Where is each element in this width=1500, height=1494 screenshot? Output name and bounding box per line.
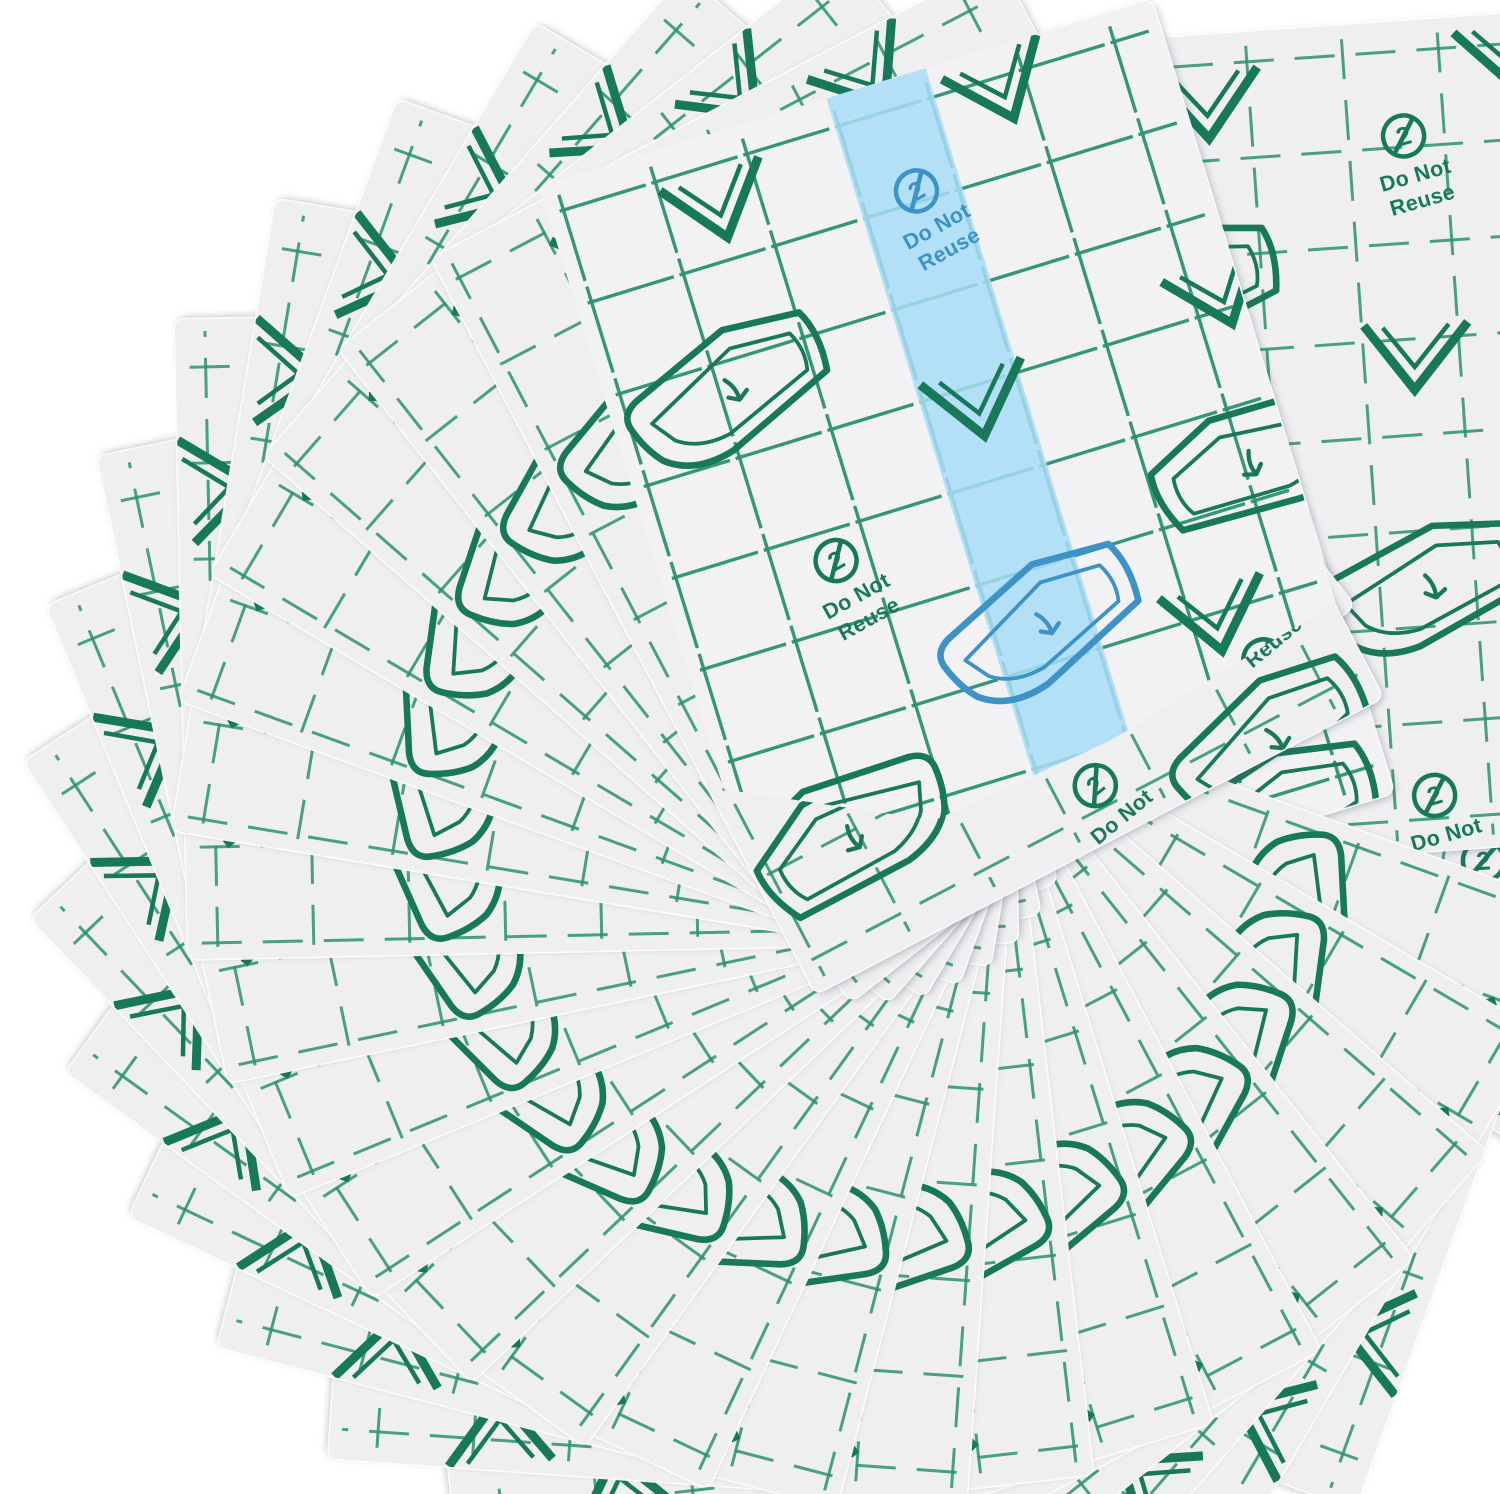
product-photo: 2Do NotReuse2Do NotReuse2Do NotReuse2Do … [0,0,1500,1494]
chevron-down-icon [1356,314,1474,398]
